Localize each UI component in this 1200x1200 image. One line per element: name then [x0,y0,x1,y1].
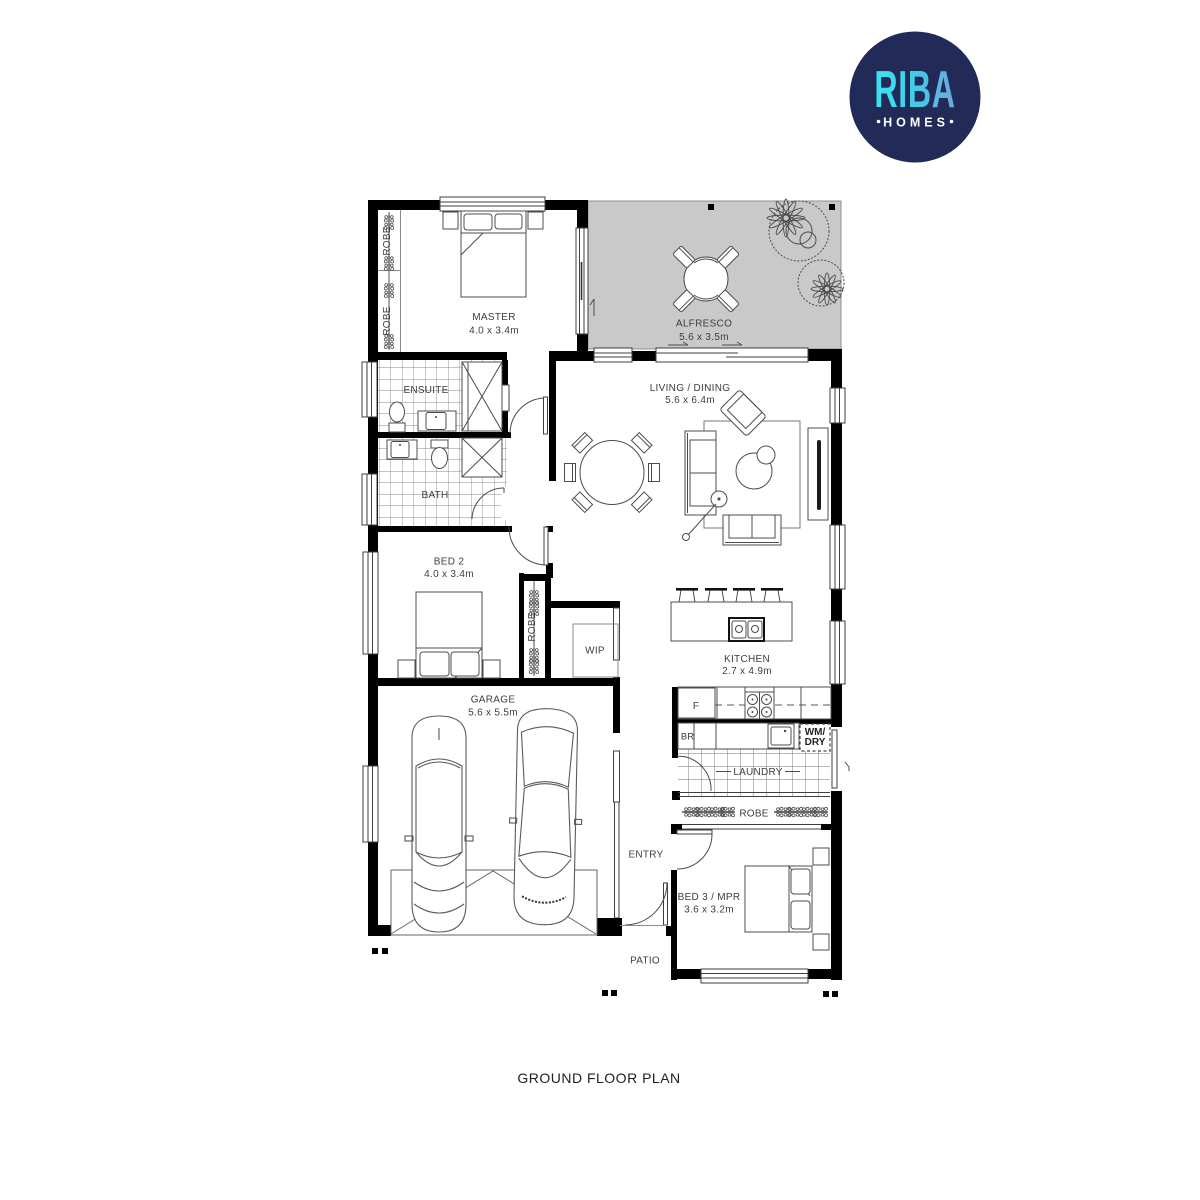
svg-text:4.0 x 3.4m: 4.0 x 3.4m [424,569,474,580]
svg-text:ROBE: ROBE [739,809,768,820]
svg-text:3.6 x 3.2m: 3.6 x 3.2m [684,905,734,916]
svg-text:LIVING / DINING: LIVING / DINING [650,383,731,394]
svg-text:5.6 x 5.5m: 5.6 x 5.5m [468,708,518,719]
svg-text:RIBA: RIBA [874,61,955,119]
svg-text:ROBE: ROBE [527,612,538,641]
svg-text:BR: BR [681,732,694,743]
svg-text:ENTRY: ENTRY [629,850,664,861]
svg-text:5.6 x 6.4m: 5.6 x 6.4m [665,395,715,406]
svg-text:2.7 x 4.9m: 2.7 x 4.9m [722,666,772,677]
svg-text:4.0 x 3.4m: 4.0 x 3.4m [469,326,519,337]
svg-text:DRY: DRY [805,737,826,748]
svg-text:GROUND FLOOR PLAN: GROUND FLOOR PLAN [517,1070,680,1086]
svg-text:5.6 x 3.5m: 5.6 x 3.5m [679,332,729,343]
svg-text:WIP: WIP [585,646,605,657]
svg-text:ROBE: ROBE [382,226,393,255]
svg-text:F: F [693,701,699,712]
svg-text:ALFRESCO: ALFRESCO [676,319,732,330]
svg-text:MASTER: MASTER [472,312,515,323]
svg-text:KITCHEN: KITCHEN [724,654,770,665]
svg-text:LAUNDRY: LAUNDRY [733,767,782,778]
svg-text:GARAGE: GARAGE [471,695,516,706]
svg-text:PATIO: PATIO [630,956,660,967]
svg-text:ENSUITE: ENSUITE [403,385,448,396]
svg-text:BED 3 / MPR: BED 3 / MPR [678,892,741,903]
svg-text:BATH: BATH [422,490,449,501]
svg-text:ROBE: ROBE [382,306,393,335]
svg-text:BED 2: BED 2 [434,557,465,568]
svg-text:HOMES: HOMES [883,116,949,130]
